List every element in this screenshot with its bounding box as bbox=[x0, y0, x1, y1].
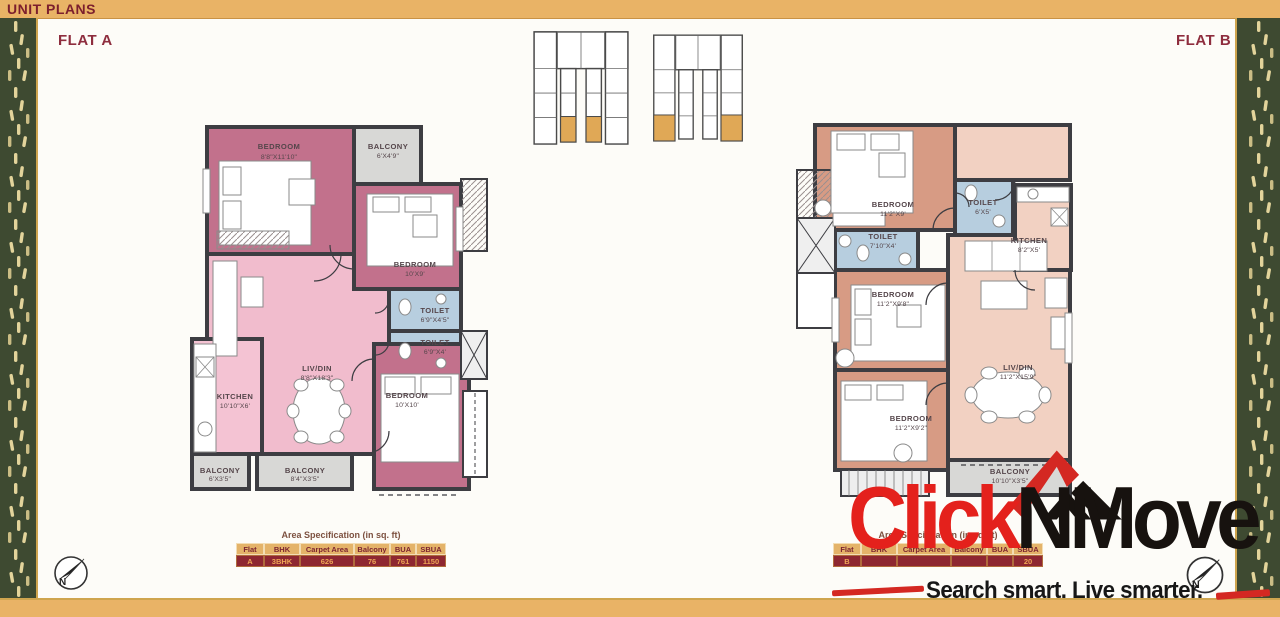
dims-balcony2-a: 6'X3'5" bbox=[209, 476, 232, 483]
label-livdin-a: LIV/DIN bbox=[302, 364, 332, 373]
dims-bedroom2-b: 11'2"X9'8" bbox=[877, 301, 910, 308]
td-bhk-a: 3BHK bbox=[264, 555, 300, 567]
dims-toilet2-b: 7'10"X4' bbox=[870, 243, 896, 250]
dims-bedroom3-b: 11'2"X9'2" bbox=[895, 425, 928, 432]
th-balcony-b: Balcony bbox=[951, 543, 987, 555]
th-sbua-a: SBUA bbox=[416, 543, 446, 555]
td-bua-b bbox=[987, 555, 1013, 567]
label-bedroom2-a: BEDROOM bbox=[394, 260, 436, 269]
label-toilet1-a: TOILET bbox=[420, 306, 449, 315]
compass-icon-right: N bbox=[1182, 552, 1228, 598]
compass-icon-left: N bbox=[50, 552, 92, 594]
td-bhk-b bbox=[861, 555, 897, 567]
td-carpet-a: 626 bbox=[300, 555, 354, 567]
label-bedroom1-b: BEDROOM bbox=[872, 200, 914, 209]
td-bua-a: 761 bbox=[390, 555, 416, 567]
dims-toilet1-b: 6'X5' bbox=[975, 209, 991, 216]
dims-livdin-b: 11'2"X15'9" bbox=[1000, 374, 1037, 381]
th-bua-a: BUA bbox=[390, 543, 416, 555]
th-bhk-a: BHK bbox=[264, 543, 300, 555]
dims-kitchen-b: 8'2"X5' bbox=[1018, 247, 1040, 254]
dims-bedroom1-b: 11'2"X9' bbox=[880, 211, 906, 218]
td-sbua-a: 1150 bbox=[416, 555, 446, 567]
dims-toilet1-a: 6'9"X4'5" bbox=[421, 317, 450, 324]
area-spec-title-b: Area Specification (in sq. ft) bbox=[833, 530, 1043, 540]
dims-balcony1-a: 6'X4'9" bbox=[377, 153, 400, 160]
room-foyer-b bbox=[955, 125, 1070, 180]
label-balcony2-a: BALCONY bbox=[200, 466, 240, 475]
key-plan-a-highlight bbox=[561, 117, 602, 142]
label-livdin-b: LIV/DIN bbox=[1003, 363, 1033, 372]
td-flat-a: A bbox=[236, 555, 264, 567]
table-value-row-a: A 3BHK 626 76 761 1150 bbox=[236, 555, 446, 567]
flat-a-floor-plan: BEDROOM 8'8"X11'10" BALCONY 6'X4'9" BEDR… bbox=[189, 119, 491, 501]
page-title: UNIT PLANS bbox=[7, 1, 96, 17]
table-value-row-b: B 20 bbox=[833, 555, 1043, 567]
dims-kitchen-a: 10'10"X6' bbox=[220, 403, 250, 410]
dims-balcony3-a: 8'4"X3'5" bbox=[291, 476, 320, 483]
dims-bedroom3-a: 10'X10' bbox=[395, 402, 419, 409]
th-bua-b: BUA bbox=[987, 543, 1013, 555]
th-balcony-a: Balcony bbox=[354, 543, 390, 555]
table-header-row-a: Flat BHK Carpet Area Balcony BUA SBUA bbox=[236, 543, 446, 555]
th-carpet-a: Carpet Area bbox=[300, 543, 354, 555]
label-balcony1-a: BALCONY bbox=[368, 142, 408, 151]
left-border-strip bbox=[0, 18, 38, 598]
label-kitchen-a: KITCHEN bbox=[217, 392, 254, 401]
label-toilet2-a: TOILET bbox=[420, 338, 449, 347]
compass-n-right: N bbox=[1192, 579, 1200, 591]
table-header-row-b: Flat BHK Carpet Area Balcony BUA SBUA bbox=[833, 543, 1043, 555]
label-bedroom1-a: BEDROOM bbox=[258, 142, 300, 151]
area-spec-table-flat-a: Area Specification (in sq. ft) Flat BHK … bbox=[236, 530, 446, 567]
label-bedroom2-b: BEDROOM bbox=[872, 290, 914, 299]
shaft-plain-b bbox=[797, 273, 835, 328]
label-bedroom3-a: BEDROOM bbox=[386, 391, 428, 400]
label-kitchen-b: KITCHEN bbox=[1011, 236, 1048, 245]
flat-b-label: FLAT B bbox=[1176, 32, 1231, 49]
page-title-bar: UNIT PLANS bbox=[0, 0, 1280, 19]
key-plan-b-highlight bbox=[654, 115, 742, 141]
td-flat-b: B bbox=[833, 555, 861, 567]
th-flat-a: Flat bbox=[236, 543, 264, 555]
key-plan-flat-a bbox=[528, 26, 634, 152]
dims-bedroom2-a: 10'X9' bbox=[405, 271, 425, 278]
td-balcony-b bbox=[951, 555, 987, 567]
label-bedroom3-b: BEDROOM bbox=[890, 414, 932, 423]
th-sbua-b: SBUA bbox=[1013, 543, 1043, 555]
td-carpet-b bbox=[897, 555, 951, 567]
label-balcony-b: BALCONY bbox=[990, 467, 1030, 476]
th-bhk-b: BHK bbox=[861, 543, 897, 555]
dims-bedroom1-a: 8'8"X11'10" bbox=[261, 154, 298, 161]
td-balcony-a: 76 bbox=[354, 555, 390, 567]
dims-toilet2-a: 6'9"X4' bbox=[424, 349, 446, 356]
th-flat-b: Flat bbox=[833, 543, 861, 555]
bottom-border-bar bbox=[0, 598, 1280, 617]
label-toilet1-b: TOILET bbox=[968, 198, 997, 207]
label-balcony3-a: BALCONY bbox=[285, 466, 325, 475]
th-carpet-b: Carpet Area bbox=[897, 543, 951, 555]
flat-b-floor-plan: BEDROOM 11'2"X9' TOILET 6'X5' KITCHEN 8'… bbox=[793, 113, 1085, 503]
unit-plans-page: UNIT PLANS FLAT A FLAT B bbox=[0, 0, 1280, 617]
compass-n-left: N bbox=[59, 577, 66, 588]
flat-a-label: FLAT A bbox=[58, 32, 113, 49]
key-plan-flat-b bbox=[648, 26, 748, 152]
area-spec-title-a: Area Specification (in sq. ft) bbox=[236, 530, 446, 540]
dims-livdin-a: 8'8"X18'3" bbox=[301, 375, 334, 382]
td-sbua-b: 20 bbox=[1013, 555, 1043, 567]
shaft-hatch-a bbox=[461, 179, 487, 251]
label-toilet2-b: TOILET bbox=[868, 232, 897, 241]
dims-balcony-b: 10'10"X3'5" bbox=[992, 478, 1029, 485]
tagline-dash-left bbox=[832, 586, 924, 597]
right-border-strip bbox=[1235, 18, 1280, 598]
room-toilet1-b bbox=[955, 180, 1013, 235]
area-spec-table-flat-b: Area Specification (in sq. ft) Flat BHK … bbox=[833, 530, 1043, 567]
